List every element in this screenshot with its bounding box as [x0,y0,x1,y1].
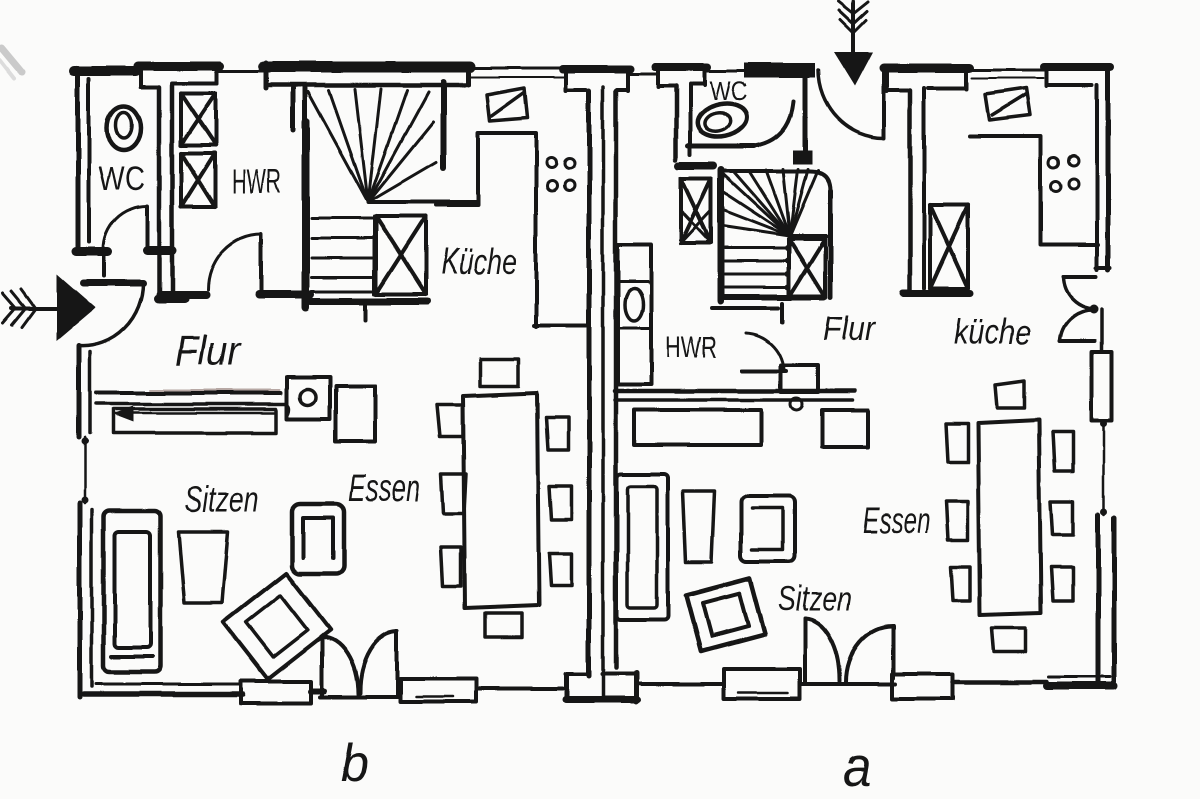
svg-text:WC: WC [709,76,747,106]
svg-text:Essen: Essen [348,468,420,510]
svg-text:b: b [341,733,369,793]
svg-text:a: a [842,735,871,798]
svg-text:Küche: Küche [441,241,517,282]
svg-text:WC: WC [99,160,145,198]
svg-text:Sitzen: Sitzen [778,580,852,618]
svg-text:HWR: HWR [665,331,717,364]
svg-text:Flur: Flur [175,327,242,374]
svg-text:Essen: Essen [863,500,930,541]
svg-text:Flur: Flur [823,310,876,348]
svg-text:HWR: HWR [231,163,281,200]
svg-text:Sitzen: Sitzen [185,479,259,520]
svg-text:küche: küche [954,311,1031,352]
